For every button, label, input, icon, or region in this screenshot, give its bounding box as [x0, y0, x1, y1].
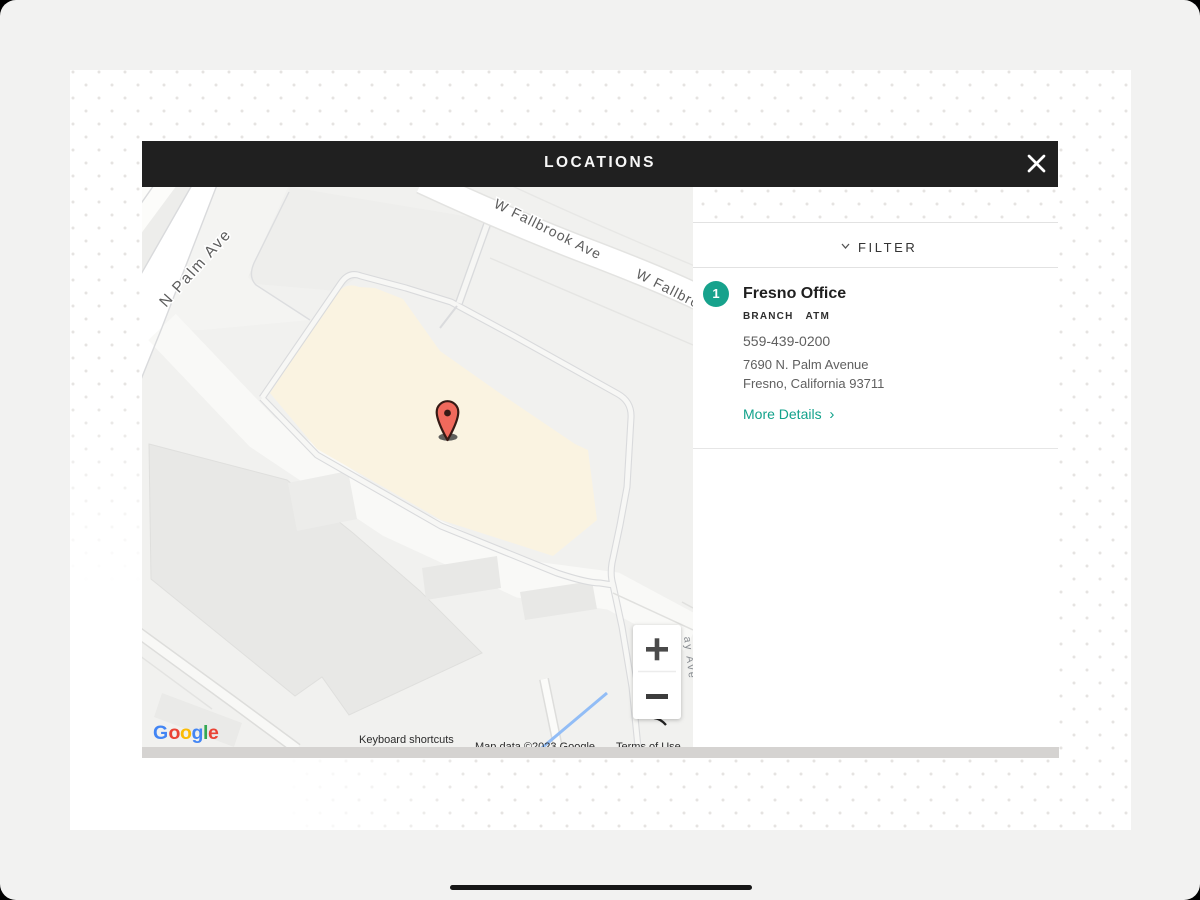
svg-text:G: G	[153, 722, 168, 744]
svg-text:o: o	[180, 722, 192, 744]
svg-text:Keyboard shortcuts: Keyboard shortcuts	[359, 734, 454, 746]
svg-text:g: g	[192, 722, 204, 744]
svg-text:o: o	[169, 722, 181, 744]
svg-text:e: e	[208, 722, 219, 744]
